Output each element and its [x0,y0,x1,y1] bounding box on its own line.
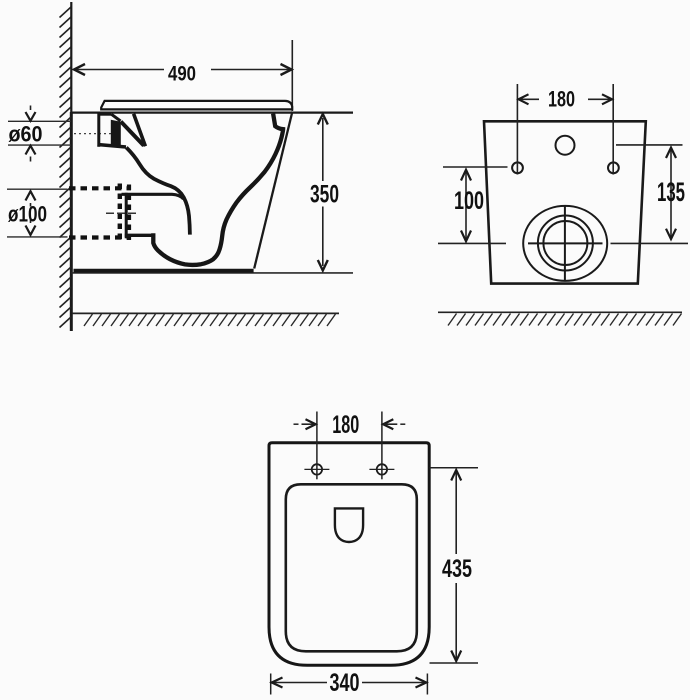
svg-text:180: 180 [548,87,575,112]
svg-text:350: 350 [310,181,339,209]
svg-text:135: 135 [657,177,685,207]
svg-text:ø60: ø60 [9,122,43,147]
svg-text:180: 180 [332,411,359,439]
svg-text:340: 340 [330,669,360,697]
svg-text:ø100: ø100 [8,202,47,227]
svg-text:490: 490 [168,63,196,86]
svg-text:100: 100 [454,187,484,215]
svg-text:435: 435 [442,555,472,583]
